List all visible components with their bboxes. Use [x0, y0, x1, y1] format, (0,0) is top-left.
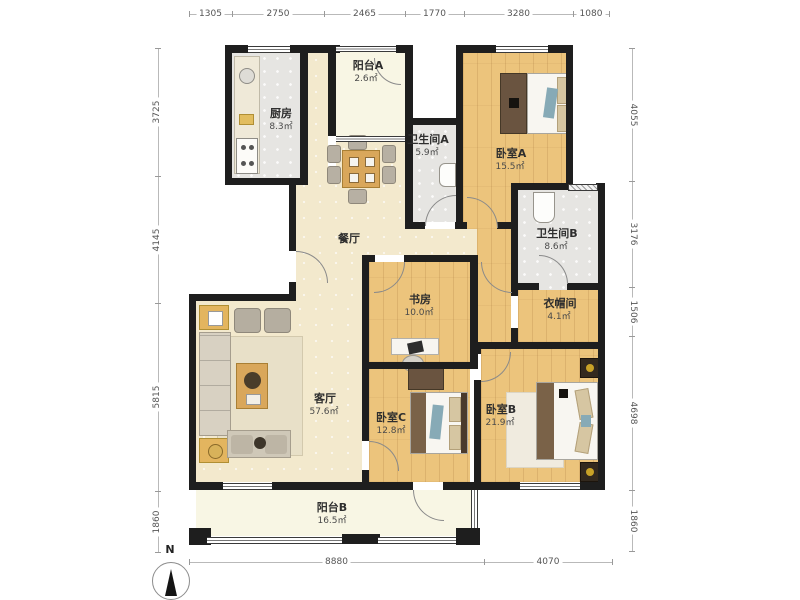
sofa-icon — [199, 332, 231, 436]
bed-icon — [536, 382, 598, 460]
wall-segment — [300, 45, 308, 185]
wall-segment — [497, 222, 511, 229]
window — [248, 46, 290, 53]
dimension-top-6: 1080 — [573, 8, 609, 20]
wall-segment — [474, 342, 481, 354]
wall-segment — [405, 118, 463, 125]
wall-segment — [566, 45, 573, 190]
room-label-living: 客厅 — [314, 393, 336, 405]
room-label-bath-b: 卫生间B — [536, 228, 577, 240]
window — [223, 483, 272, 490]
room-area-balcony-a: 2.6㎡ — [354, 74, 377, 84]
toilet-icon — [439, 163, 456, 187]
window-mullion — [342, 534, 380, 544]
stove-icon — [236, 138, 258, 174]
dimension-left-3: 5815 — [152, 303, 164, 491]
room-label-bath-a: 卫生间A — [407, 134, 449, 146]
dimension-bottom-2: 4070 — [484, 556, 612, 568]
room-area-bedroom-a: 15.5㎡ — [495, 162, 524, 172]
chair-icon — [382, 166, 396, 184]
dimension-top-3: 2465 — [324, 8, 405, 20]
wall-segment — [598, 183, 605, 489]
dimension-left-1: 3725 — [152, 48, 164, 176]
room-area-bath-b: 8.6㎡ — [544, 242, 567, 252]
wall-segment — [362, 362, 478, 369]
room-label-cloakroom: 衣帽间 — [544, 298, 577, 310]
coffee-table-icon — [236, 363, 268, 409]
side-table-icon — [199, 305, 229, 330]
wall-segment — [405, 222, 425, 229]
wall-segment — [463, 45, 496, 53]
side-table-icon — [199, 438, 229, 463]
wall-segment — [471, 482, 481, 490]
kettle-icon — [239, 114, 254, 125]
dimension-right-5: 1860 — [626, 490, 638, 551]
dimension-right-1: 4055 — [626, 48, 638, 181]
dimension-left-2: 4145 — [152, 176, 164, 303]
nightstand-icon — [580, 462, 599, 482]
chair-icon — [382, 145, 396, 163]
wall-segment — [272, 482, 413, 490]
room-area-bath-a: 5.9㎡ — [415, 148, 438, 158]
dimension-top-5: 3280 — [464, 8, 573, 20]
dimension-right-2: 3176 — [626, 181, 638, 287]
room-area-study: 10.0㎡ — [404, 308, 433, 318]
room-area-cloakroom: 4.1㎡ — [547, 312, 570, 322]
wall-segment — [511, 183, 518, 296]
wall-segment — [225, 45, 232, 185]
floorplan-canvas: 厨房 8.3㎡ 阳台A 2.6㎡ 卫生间A 5.9㎡ 卧室A 15.5㎡ 卫生间… — [0, 0, 800, 600]
bed-icon — [527, 73, 568, 134]
wall-segment — [189, 482, 223, 490]
chair-icon — [327, 145, 341, 163]
dimension-top-1: 1305 — [189, 8, 232, 20]
room-area-bedroom-b: 21.9㎡ — [485, 418, 514, 428]
dimension-top-2: 2750 — [232, 8, 324, 20]
wall-segment — [474, 342, 605, 349]
chair-icon — [327, 166, 341, 184]
wardrobe-icon — [500, 73, 527, 134]
dimension-left-4: 1860 — [152, 491, 164, 552]
armchair-icon — [264, 308, 291, 333]
room-area-kitchen: 8.3㎡ — [269, 122, 292, 132]
wall-segment — [328, 52, 336, 136]
room-label-kitchen: 厨房 — [270, 108, 292, 120]
wall-segment — [289, 178, 296, 251]
bed-icon — [410, 392, 468, 454]
wall-segment — [189, 294, 196, 489]
wardrobe-icon — [408, 368, 444, 390]
room-label-balcony-a: 阳台A — [353, 60, 384, 72]
dining-table-icon — [342, 150, 380, 188]
window — [568, 184, 598, 191]
dimension-right-4: 4698 — [626, 336, 638, 490]
wall-segment — [405, 45, 413, 141]
window — [471, 490, 478, 528]
north-arrow-icon — [165, 569, 177, 596]
window — [207, 537, 342, 544]
dimension-top-4: 1770 — [405, 8, 464, 20]
wall-segment — [474, 380, 481, 489]
room-label-bedroom-c: 卧室C — [376, 412, 406, 424]
nightstand-icon — [580, 358, 599, 378]
window — [520, 483, 580, 490]
dimension-right-3: 1506 — [626, 287, 638, 336]
wall-segment — [362, 255, 369, 441]
wall-segment — [404, 255, 478, 262]
wall-segment — [189, 294, 296, 301]
wall-segment — [511, 183, 568, 190]
sink-icon — [239, 68, 255, 84]
chair-icon — [348, 189, 367, 204]
room-area-balcony-b: 16.5㎡ — [317, 516, 346, 526]
window — [378, 537, 456, 544]
room-label-bedroom-a: 卧室A — [496, 148, 527, 160]
wall-segment — [511, 283, 539, 290]
window — [336, 136, 405, 142]
wall-segment — [225, 45, 248, 53]
hallway-floor — [296, 229, 477, 255]
wall-segment — [405, 141, 413, 229]
dining-floor-strip — [308, 52, 328, 178]
window — [496, 46, 548, 53]
wall-segment — [456, 528, 480, 545]
armchair-icon — [234, 308, 261, 333]
bench-icon — [227, 430, 291, 458]
dimension-bottom-1: 8880 — [189, 556, 484, 568]
room-label-balcony-b: 阳台B — [317, 502, 347, 514]
room-area-living: 57.6㎡ — [309, 407, 338, 417]
compass-north-label: N — [165, 543, 174, 556]
wall-segment — [567, 283, 605, 290]
room-label-study: 书房 — [409, 294, 431, 306]
room-label-bedroom-b: 卧室B — [486, 404, 516, 416]
sink-icon — [533, 192, 555, 223]
room-area-bedroom-c: 12.8㎡ — [376, 426, 405, 436]
wall-segment — [580, 482, 605, 490]
wall-segment — [455, 222, 467, 229]
room-label-dining: 餐厅 — [338, 233, 360, 245]
compass-icon — [152, 562, 190, 600]
window — [336, 46, 396, 52]
desk-icon — [391, 338, 439, 355]
wall-segment — [456, 45, 463, 229]
